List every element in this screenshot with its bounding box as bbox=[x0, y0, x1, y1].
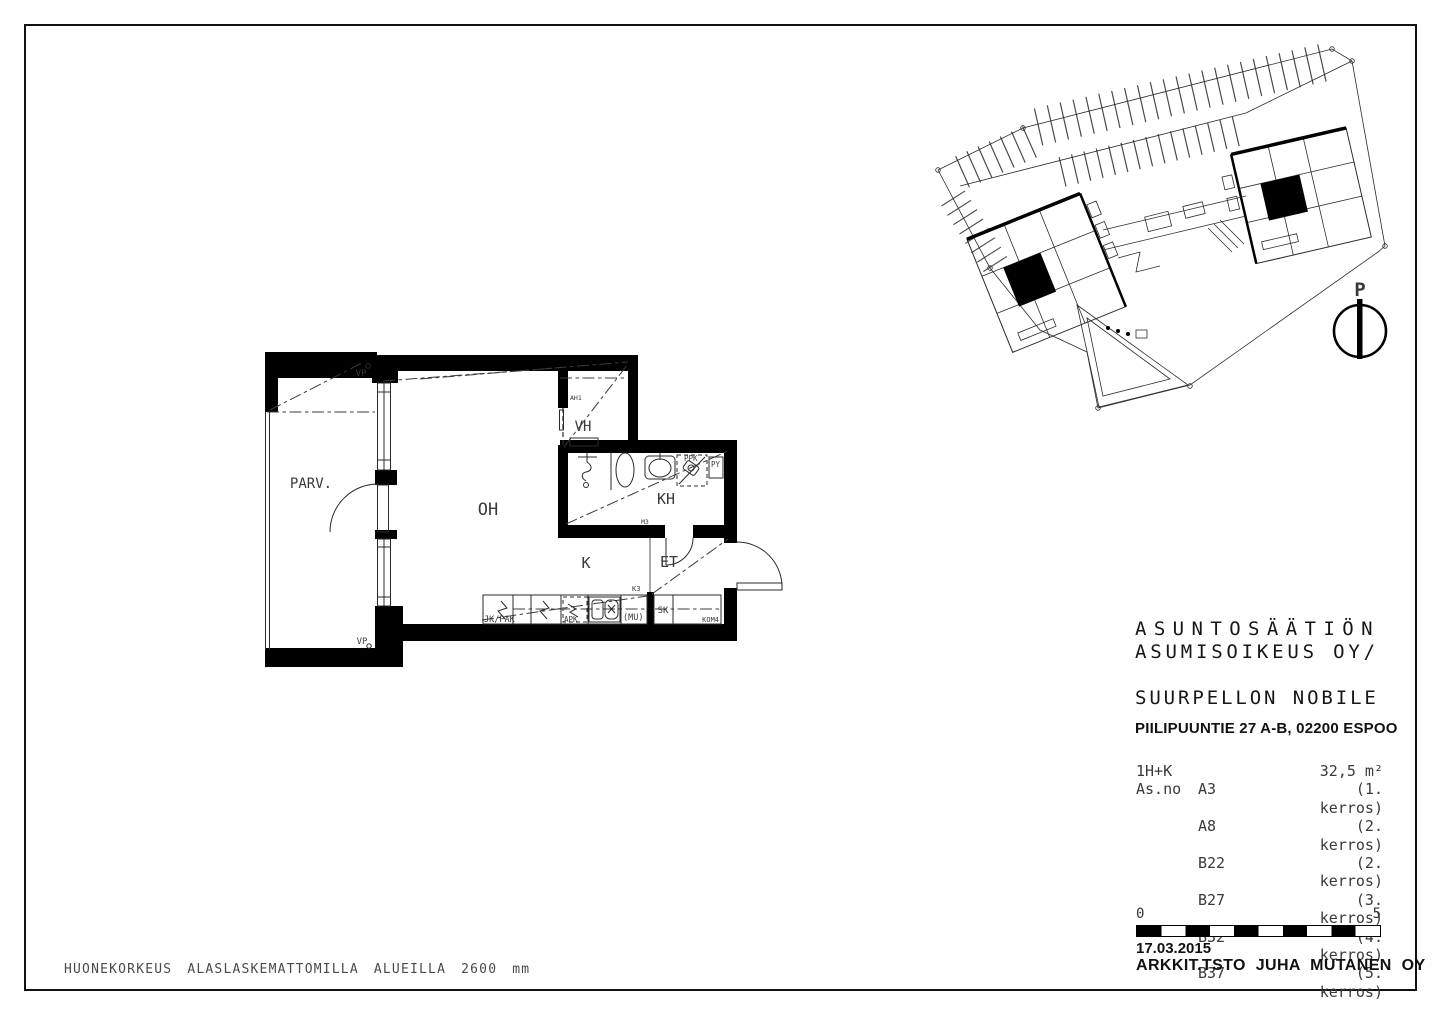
drive-aisle-line bbox=[1246, 61, 1352, 113]
vp-point bbox=[367, 644, 371, 648]
label-laundry-cabinet: PY bbox=[711, 460, 721, 469]
unit-code: B22 bbox=[1198, 854, 1286, 891]
marker-k3: K3 bbox=[632, 585, 640, 593]
balcony-railing bbox=[266, 412, 270, 650]
unit-floor: (2. kerros) bbox=[1286, 817, 1383, 854]
site-plan: P bbox=[936, 47, 1388, 411]
org-name-line2: ASUMISOIKEUS OY/ bbox=[1135, 643, 1379, 662]
scale-numbers: 0 5 bbox=[1136, 906, 1381, 922]
bathroom-fixtures bbox=[578, 452, 723, 490]
scale-bar-strip bbox=[1136, 925, 1381, 937]
parking-row bbox=[962, 141, 1032, 172]
ceiling-height-note: HUONEKORKEUS ALASLASKEMATTOMILLA ALUEILL… bbox=[64, 962, 530, 977]
marker-ah1: AH1 bbox=[570, 394, 582, 402]
marker-m3: M3 bbox=[641, 518, 649, 526]
entrance-door bbox=[737, 542, 782, 590]
label-microwave: (MU) bbox=[623, 613, 643, 623]
label-closet4: KOM4 bbox=[702, 616, 719, 624]
unit-code: A3 bbox=[1198, 780, 1286, 817]
balcony-door bbox=[330, 484, 389, 532]
unit-row: As.no A3 (1. kerros) bbox=[1136, 780, 1383, 817]
apartment-type-row: 1H+K 32,5 m² bbox=[1136, 762, 1383, 780]
window bbox=[378, 383, 391, 470]
window bbox=[378, 539, 391, 606]
room-label-living: OH bbox=[478, 500, 498, 520]
site-boundary bbox=[938, 170, 1087, 352]
north-arrow-bar bbox=[1357, 299, 1363, 359]
marker-vp-top: VP bbox=[356, 369, 367, 379]
electric-symbol bbox=[540, 601, 549, 619]
room-label-entry: ET bbox=[660, 553, 678, 571]
unit-floor: (2. kerros) bbox=[1286, 854, 1383, 891]
project-address: PIILIPUUNTIE 27 A-B, 02200 ESPOO bbox=[1135, 720, 1398, 737]
scale-bar: 0 5 bbox=[1136, 906, 1381, 937]
scale-end: 5 bbox=[1373, 906, 1381, 922]
site-center-structures bbox=[1103, 196, 1246, 338]
north-label: P bbox=[1354, 279, 1365, 301]
highlighted-unit bbox=[1003, 253, 1056, 307]
marker-vp-bottom: VP bbox=[357, 637, 368, 647]
room-label-balcony: PARV. bbox=[290, 476, 332, 492]
architect-name: ARKKIT.TSTO JUHA MUTANEN OY bbox=[1136, 957, 1426, 975]
unit-floor: (1. kerros) bbox=[1286, 780, 1383, 817]
apartment-area: 32,5 m² bbox=[1286, 762, 1383, 780]
label-dishwasher: APK bbox=[564, 615, 578, 624]
label-washing-machine: PPK bbox=[684, 454, 698, 463]
scale-start: 0 bbox=[1136, 906, 1144, 922]
north-arrow: P bbox=[1334, 279, 1386, 359]
unit-code: A8 bbox=[1198, 817, 1286, 854]
shower-symbol bbox=[578, 453, 597, 488]
org-name-line1: ASUNTOSÄÄTIÖN bbox=[1135, 620, 1380, 639]
drawing-sheet: P bbox=[0, 0, 1440, 1017]
parking-row bbox=[1038, 62, 1326, 127]
parking-row bbox=[1062, 130, 1242, 172]
site-boundary bbox=[1087, 246, 1385, 408]
drawing-date: 17.03.2015 bbox=[1136, 940, 1211, 957]
courtyard bbox=[1077, 305, 1188, 407]
floor-plan: PARV. OH K ET KH VH VP VP AH1 M3 K3 JK/P… bbox=[265, 352, 782, 667]
room-label-kitchen: K bbox=[581, 554, 590, 572]
courtyard-inner bbox=[1087, 318, 1170, 396]
asno-label: As.no bbox=[1136, 780, 1198, 817]
apartment-type: 1H+K bbox=[1136, 762, 1198, 780]
label-fridge: JK/PAK bbox=[484, 615, 516, 625]
highlighted-unit bbox=[1260, 175, 1308, 221]
unit-row: A8 (2. kerros) bbox=[1136, 817, 1383, 854]
label-cleaning-closet: SK bbox=[658, 606, 669, 616]
room-label-bathroom: KH bbox=[657, 490, 675, 508]
toilet bbox=[611, 452, 634, 490]
washbasin bbox=[645, 453, 675, 479]
kitchen-sink bbox=[589, 597, 620, 622]
room-label-closet: VH bbox=[575, 419, 592, 435]
project-name: SUURPELLON NOBILE bbox=[1135, 689, 1379, 708]
unit-row: B22 (2. kerros) bbox=[1136, 854, 1383, 891]
